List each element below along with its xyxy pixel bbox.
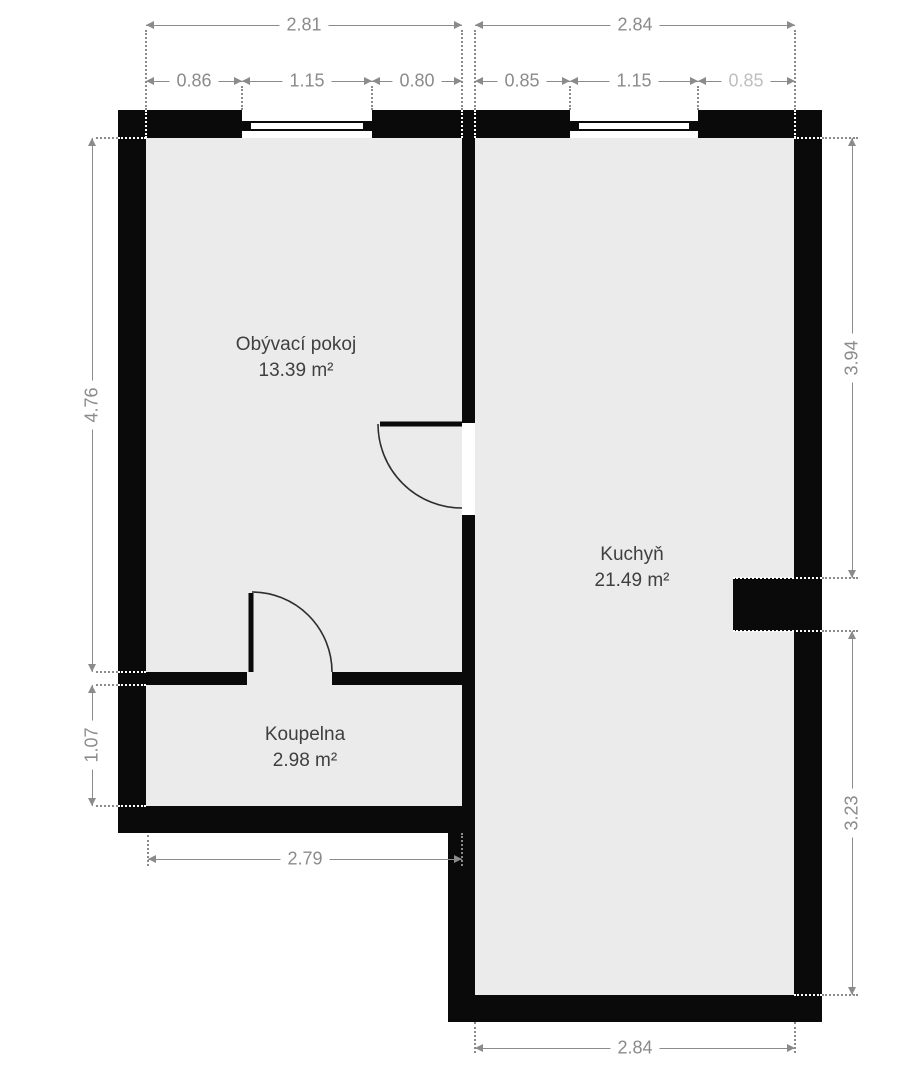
door-arc-kitchen (378, 424, 462, 508)
dim-label-top-right-part-2: 1.15 (609, 71, 658, 92)
dim-label-left-lower: 1.07 (82, 720, 103, 769)
dim-label-top-left-part-3: 0.80 (392, 71, 441, 92)
dim-label-top-left-part-1: 0.86 (169, 71, 218, 92)
room-name-kitchen: Kuchyň (595, 542, 670, 568)
floor-plan: 2.81 0.86 1.15 0.80 2.84 0.85 1.15 0.85 … (0, 0, 920, 1080)
dim-label-left-upper: 4.76 (82, 380, 103, 429)
room-area-living-room: 13.39 m² (236, 358, 356, 384)
dim-label-bottom-right: 2.84 (610, 1038, 659, 1059)
dim-label-bottom-left: 2.79 (280, 849, 329, 870)
room-name-living-room: Obývací pokoj (236, 332, 356, 358)
room-area-bathroom: 2.98 m² (265, 748, 345, 774)
door-arc-bathroom (252, 592, 332, 672)
room-label-kitchen: Kuchyň 21.49 m² (595, 542, 670, 594)
room-name-bathroom: Koupelna (265, 722, 345, 748)
dim-label-right-upper: 3.94 (842, 333, 863, 382)
room-label-bathroom: Koupelna 2.98 m² (265, 722, 345, 774)
dim-label-top-right-total: 2.84 (610, 15, 659, 36)
room-label-living-room: Obývací pokoj 13.39 m² (236, 332, 356, 384)
room-area-kitchen: 21.49 m² (595, 568, 670, 594)
dim-label-top-left-part-2: 1.15 (282, 71, 331, 92)
dim-label-top-right-part-3: 0.85 (721, 71, 770, 92)
door-symbols (0, 0, 920, 1080)
dim-label-top-right-part-1: 0.85 (497, 71, 546, 92)
dim-label-top-left-total: 2.81 (279, 15, 328, 36)
dim-label-right-lower: 3.23 (842, 788, 863, 837)
